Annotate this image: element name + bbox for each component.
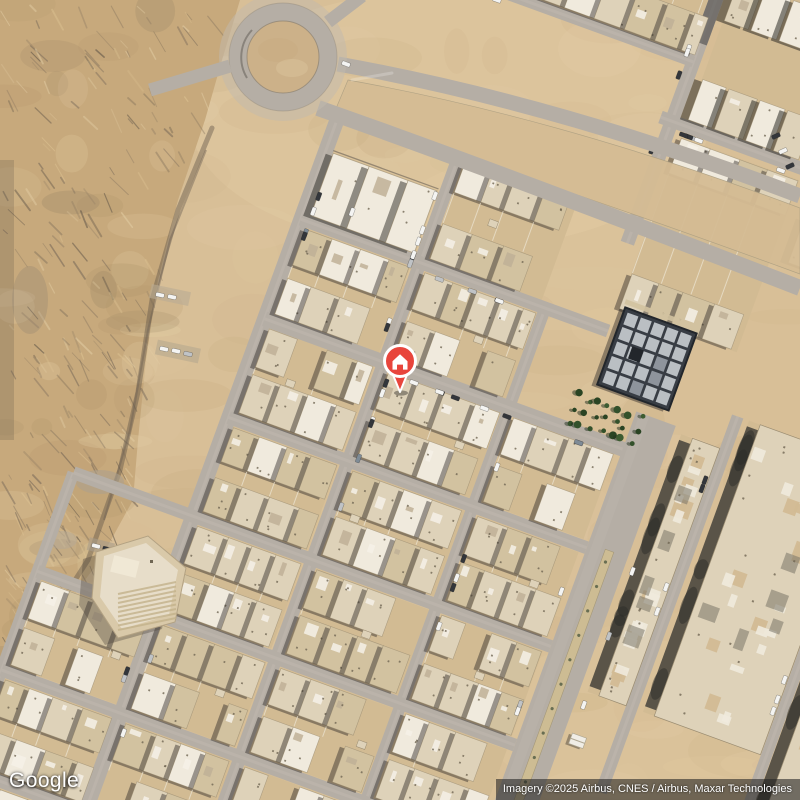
- imagery-attribution: Imagery ©2025 Airbus, CNES / Airbus, Max…: [496, 779, 800, 800]
- map-viewport[interactable]: Google Imagery ©2025 Airbus, CNES / Airb…: [0, 0, 800, 800]
- google-logo[interactable]: Google: [9, 769, 79, 793]
- satellite-imagery: [0, 0, 800, 800]
